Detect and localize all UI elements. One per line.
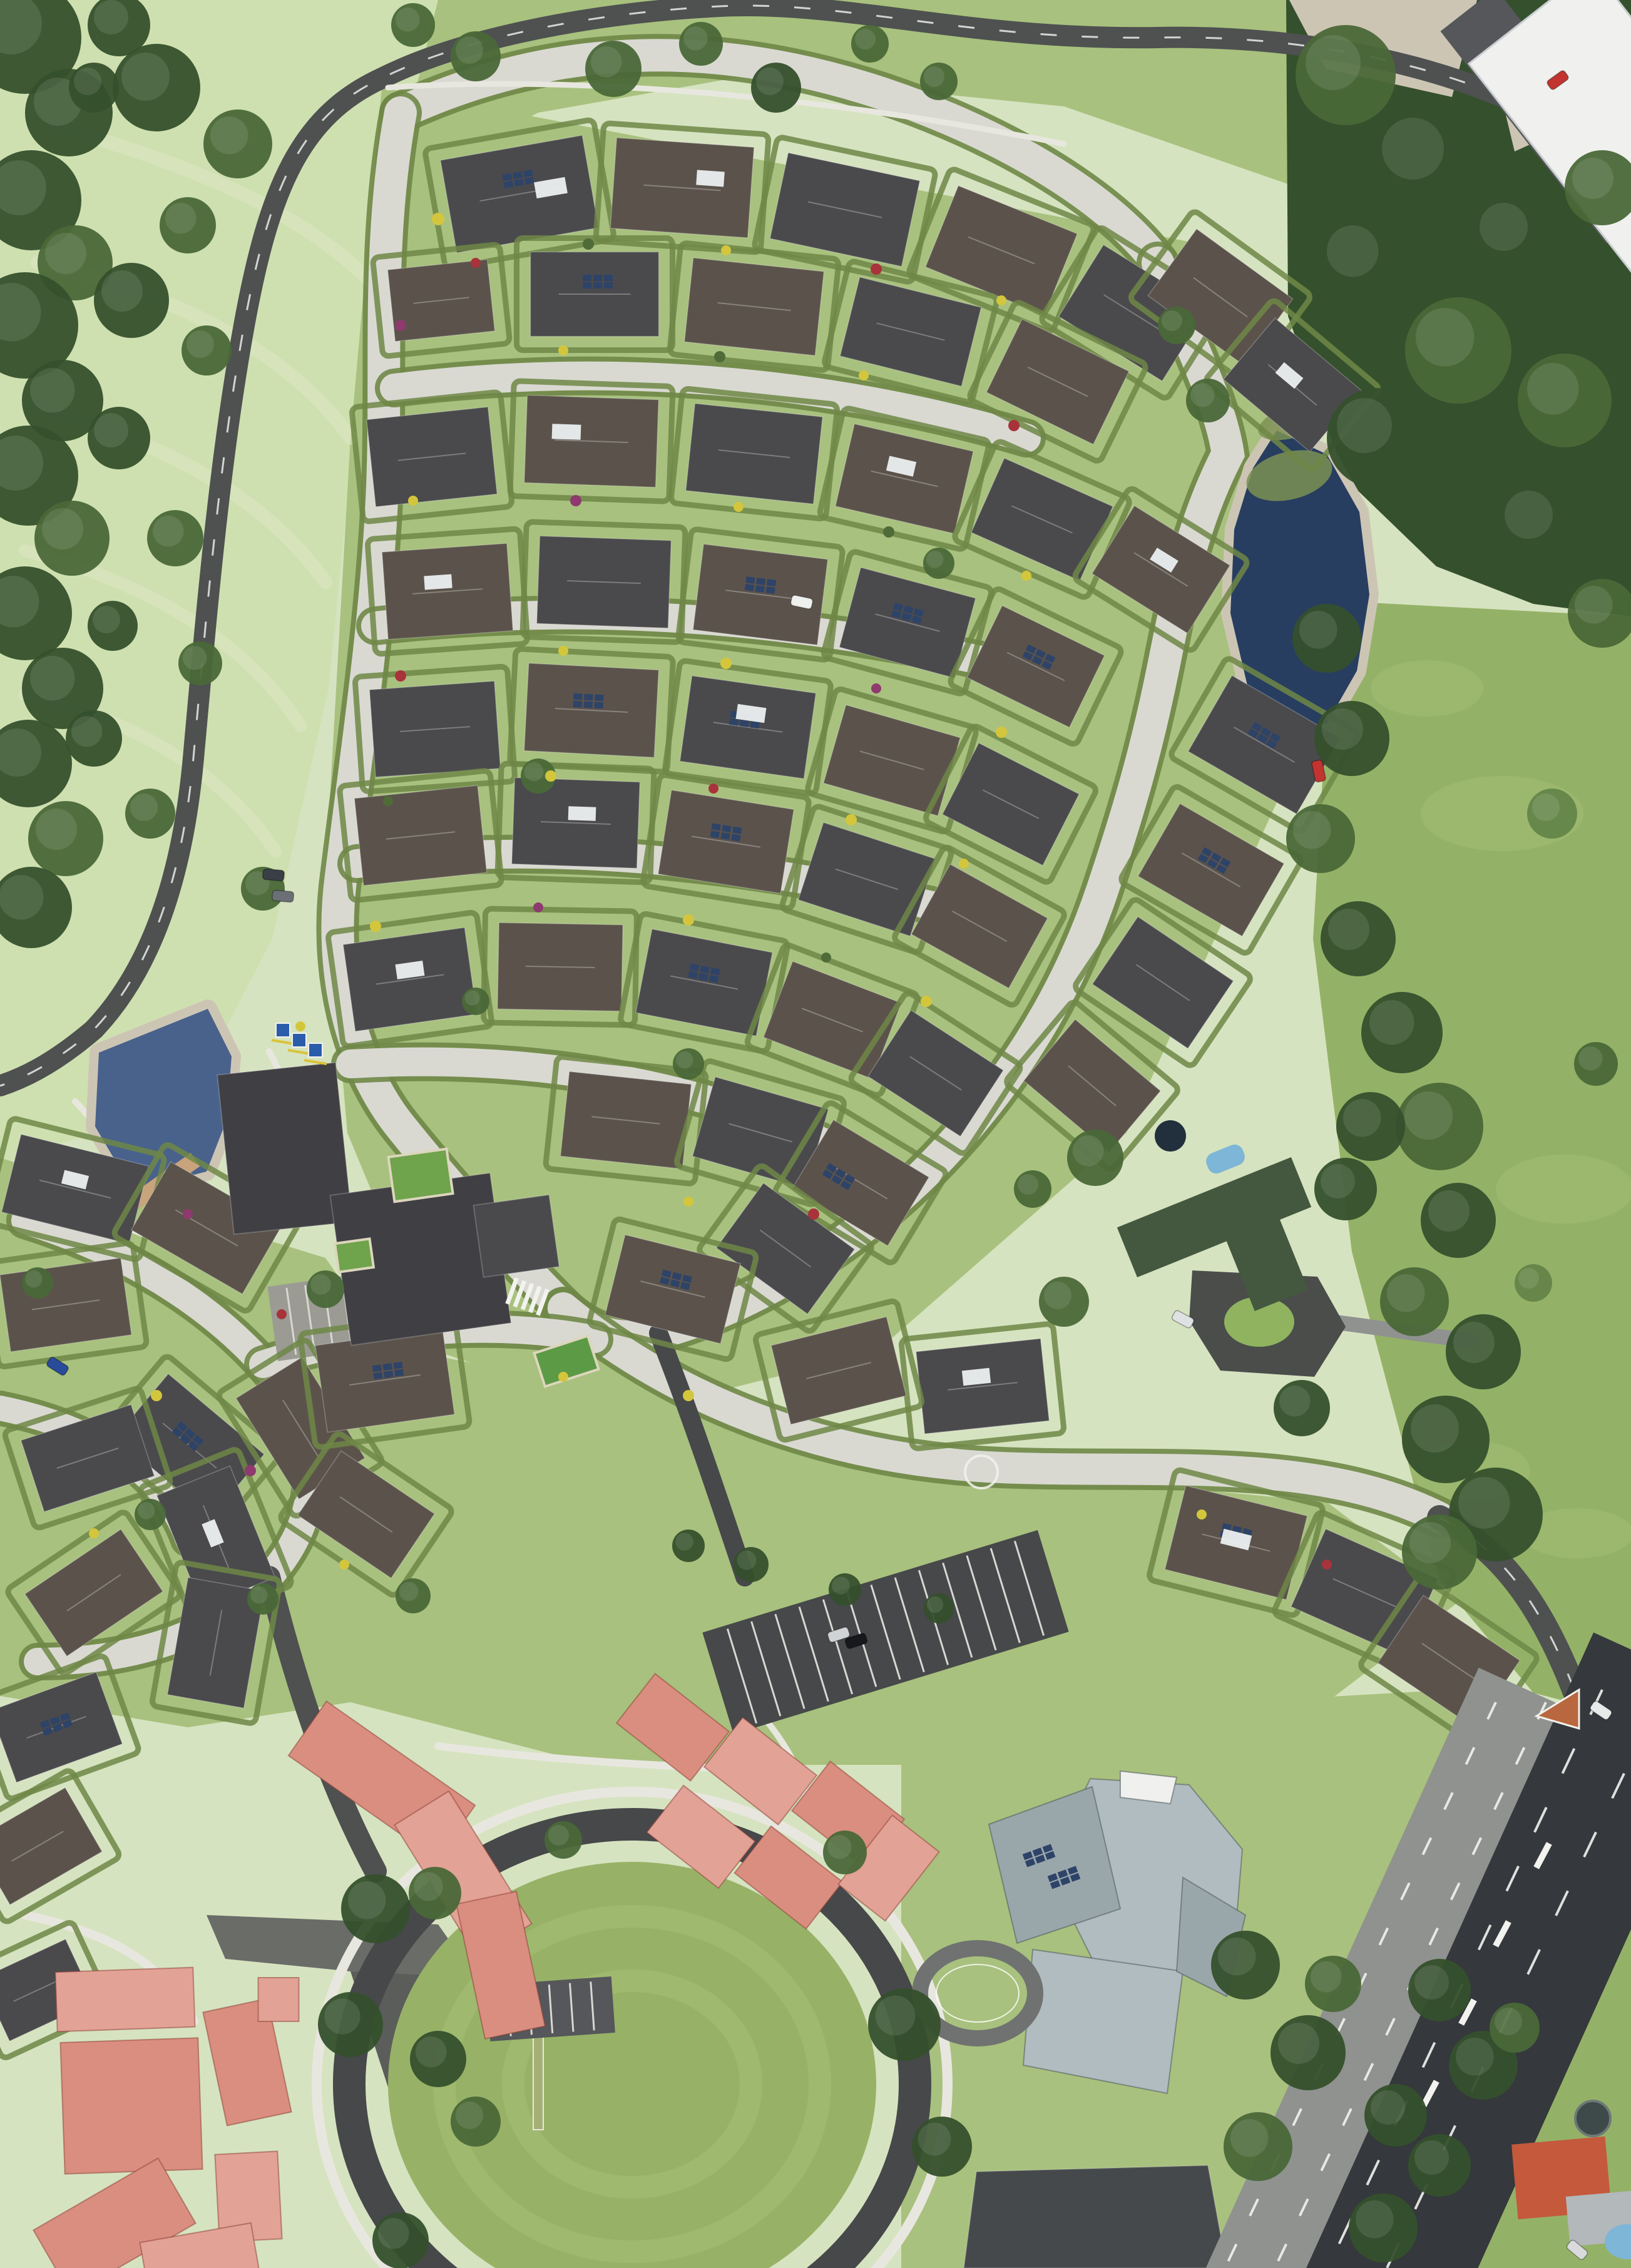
solar-panel [604,282,613,289]
tree-highlight [756,68,784,95]
garden-shrub [1008,420,1020,431]
car [272,890,294,902]
tree-highlight [1306,35,1361,90]
tree-highlight [71,716,103,747]
accessible-bay [309,1043,322,1057]
tree-highlight [1018,1174,1038,1195]
solar-panel [583,282,591,289]
tree-highlight [1572,158,1613,199]
garden-shrub [370,921,381,932]
red-roof-building [55,1968,195,2032]
garden-shrub [721,245,731,255]
tree-highlight [1337,398,1392,453]
garden-shrub [708,784,718,794]
tree-highlight [1518,1268,1539,1289]
solar-panel [593,275,602,281]
garden-shrub [432,213,444,225]
tree-highlight [42,508,83,549]
solar-panel [745,576,755,584]
garden-shrub [558,345,568,355]
bowling-green [388,1149,452,1202]
solar-panel [604,275,613,281]
tree-highlight [924,66,944,87]
garden-shrub [395,670,406,682]
tree-highlight [675,1533,693,1551]
accessible-bay [276,1023,290,1037]
garden-shrub [570,495,581,506]
solar-panel [766,586,775,594]
tree-highlight [396,8,420,32]
tree-highlight [1414,2140,1449,2175]
garden-shrub [1021,571,1031,581]
garden-shrub [714,351,725,362]
garden-shrub [808,1208,819,1220]
tree-highlight [1458,1477,1510,1529]
garden-shrub [383,796,393,806]
solar-panel [594,702,603,709]
tree-highlight [1230,2119,1269,2157]
garden-shrub [408,496,418,506]
community-centre-porch [1120,1771,1177,1804]
tree-highlight [1480,203,1528,251]
tree-highlight [30,368,75,413]
solar-panel [767,579,776,586]
tree-highlight [1322,708,1363,750]
garden-shrub [883,526,894,538]
solar-panel [595,695,604,702]
tree-highlight [1416,308,1475,367]
tree-highlight [1311,1961,1342,1993]
garden-shrub [871,683,881,693]
solar-panel [584,694,593,701]
garden-shrub [533,902,543,912]
tree-highlight [876,1996,916,2036]
solar-panel [756,578,765,585]
tree-highlight [1328,909,1369,950]
tree-highlight [93,606,120,633]
solar-panel [383,1363,392,1371]
solar-panel [593,282,602,289]
tree-highlight [399,1582,419,1601]
tree-highlight [1279,1386,1311,1417]
garden-shrub [1197,1509,1207,1520]
solar-panel [393,1362,402,1369]
tree-highlight [524,762,544,782]
garden-shrub [89,1528,99,1538]
tree-highlight [130,794,158,821]
tree-highlight [165,203,197,234]
tree-highlight [1409,1522,1451,1563]
solar-panel [740,720,749,727]
pasture-patch [1371,660,1483,717]
tree-highlight [1532,794,1560,821]
tree-highlight [1404,1091,1453,1140]
garden-shrub [683,914,694,926]
red-roof-building [60,2038,202,2174]
tree-highlight [187,330,214,358]
tree-highlight [45,233,86,274]
garden-shrub [245,1465,256,1476]
garden-shrub [683,1390,694,1401]
tree-highlight [348,1881,386,1919]
garden-shrub [558,646,568,656]
tree-highlight [378,2218,409,2249]
aerial-orthophoto [0,0,1631,2268]
water-tank [1155,1120,1186,1152]
tree-highlight [1578,1046,1603,1071]
tree-highlight [1356,2200,1394,2239]
solar-panel [583,702,593,708]
tree-highlight [416,2036,447,2068]
tree-highlight [456,2102,483,2129]
tree-highlight [414,1872,442,1901]
solar-panel [373,1372,382,1379]
garden-shrub [846,814,857,825]
tree-highlight [1411,1404,1459,1453]
garden-shrub [545,770,556,782]
roof-awning [962,1368,991,1386]
tree-highlight [464,990,479,1005]
accessible-bay [292,1033,306,1047]
solar-panel [750,721,759,728]
garden-shrub [151,1390,162,1401]
roof-awning [424,574,452,590]
solar-panel [745,584,754,591]
tree-highlight [36,809,77,850]
south-hall [964,2165,1227,2268]
tree-highlight [1505,491,1553,539]
roof-awning [568,806,596,821]
tree-highlight [94,413,128,447]
garden-shrub [471,258,481,268]
tree-highlight [138,1502,155,1520]
garden-shrub [996,727,1007,738]
garden-shrub [996,295,1006,305]
garden-shrub [871,263,882,275]
tree-highlight [1428,1190,1470,1232]
tree-highlight [1527,363,1579,415]
tree-highlight [94,0,128,34]
garden-shrub [295,1021,305,1031]
tree-highlight [30,656,75,701]
roof-awning [552,424,581,440]
solar-panel [372,1364,382,1372]
tree-highlight [210,116,248,155]
garden-shrub [821,953,831,963]
tree-highlight [25,1270,43,1288]
scene-svg [0,0,1631,2268]
tree-highlight [121,53,170,101]
tree-highlight [1299,611,1337,649]
tree-highlight [855,29,876,49]
tree-highlight [456,36,483,64]
tree-highlight [927,1596,943,1613]
tree-highlight [1343,1099,1381,1137]
cricket-pitch [533,2026,543,2130]
tree-highlight [1278,2023,1319,2064]
garden-shrub [558,1372,568,1382]
tree-highlight [1371,2090,1405,2125]
tree-highlight [310,1274,331,1295]
tree-highlight [74,68,101,95]
solar-panel [755,585,765,593]
garden-shrub [583,238,594,250]
tree-highlight [683,26,708,51]
red-roof-building [258,1978,299,2021]
tree-highlight [1044,1282,1071,1309]
tree-highlight [0,875,44,920]
tree-highlight [324,1998,360,2034]
tree-highlight [1073,1135,1104,1167]
tree-highlight [1453,1322,1495,1363]
solar-panel [573,693,583,700]
garden-shrub [720,658,732,669]
garden-shrub [683,1197,693,1207]
car [262,869,284,881]
garden-shrub [339,1560,349,1570]
solar-panel [729,718,739,726]
tree-highlight [250,1586,268,1604]
solar-panel [394,1369,404,1377]
roof-awning [696,170,725,186]
tree-highlight [1327,225,1379,277]
tree-highlight [1190,383,1215,407]
tree-highlight [1162,310,1182,331]
tree-highlight [591,46,622,78]
small-green [335,1239,374,1272]
tree-highlight [548,1825,569,1846]
garden-shrub [183,1209,193,1219]
tree-highlight [183,646,207,670]
tree-highlight [832,1576,850,1595]
tree-highlight [926,551,944,568]
garden-shrub [277,1309,287,1319]
tree-highlight [1321,1164,1355,1198]
garden-shrub [734,502,744,512]
tree-highlight [676,1051,693,1069]
tree-highlight [101,270,143,312]
tree-highlight [1456,2038,1494,2076]
tree-highlight [1414,1965,1449,2000]
tree-highlight [1382,118,1444,180]
solar-panel [384,1371,393,1378]
pasture-patch [1496,1155,1631,1223]
solar-panel [583,275,591,281]
tree-highlight [1218,1938,1256,1976]
tree-highlight [737,1551,757,1570]
tree-highlight [918,2123,951,2156]
clubhouse-east-wing [474,1195,560,1277]
tree-highlight [1495,2008,1522,2035]
solar-panel [573,701,582,708]
tree-highlight [1575,586,1613,624]
garden-shrub [959,859,969,869]
garden-shrub [859,370,869,381]
tree-highlight [153,516,184,547]
tree-highlight [1293,811,1331,849]
garden-shrub [1322,1560,1332,1570]
tree-highlight [827,1835,852,1859]
garden-shrub [921,996,932,1007]
trampoline [1575,2101,1610,2136]
tree-highlight [1387,1274,1425,1312]
tree-highlight [1369,1000,1414,1045]
garden-shrub [395,320,406,331]
